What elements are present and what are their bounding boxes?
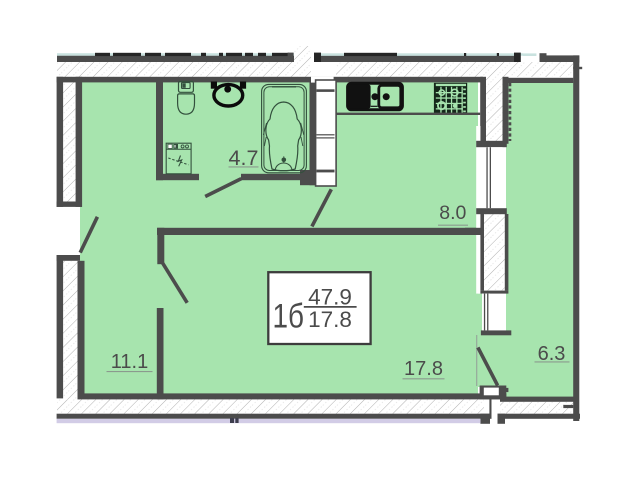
svg-text:47.9: 47.9: [308, 284, 352, 309]
svg-text:1б: 1б: [273, 298, 305, 336]
svg-text:8.0: 8.0: [439, 202, 466, 224]
svg-text:11.1: 11.1: [111, 351, 148, 373]
svg-text:17.8: 17.8: [308, 307, 352, 332]
svg-text:17.8: 17.8: [404, 358, 443, 380]
